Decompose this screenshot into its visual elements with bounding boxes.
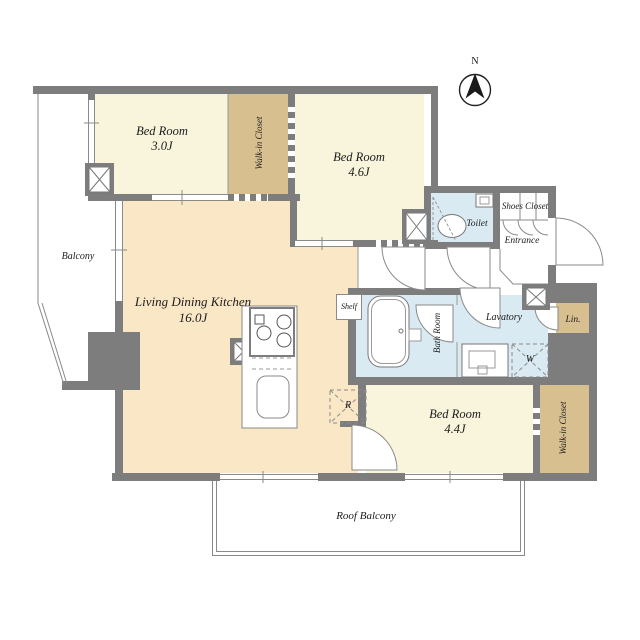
- door-arc-hallway: [447, 247, 490, 290]
- label-roof-balcony: Roof Balcony: [306, 510, 426, 522]
- label-bedroom-top-left: Bed Room3.0J: [102, 124, 222, 154]
- wall-segment: [353, 240, 370, 247]
- wall-segment: [533, 436, 540, 473]
- label-entrance: Entrance: [482, 235, 562, 247]
- wall-pillar: [88, 332, 140, 390]
- wall-segment: [548, 283, 597, 293]
- wall-segment: [533, 385, 540, 402]
- wall-segment: [431, 86, 438, 193]
- wall-segment: [424, 193, 431, 249]
- wall-segment: [115, 390, 123, 475]
- door-arc-bedroom-top-right: [382, 247, 425, 290]
- label-ldk: Living Dining Kitchen16.0J: [108, 294, 278, 326]
- compass-icon: [460, 74, 491, 106]
- window: [88, 100, 95, 164]
- label-walk-in-closet-top: Walk-in Closet: [254, 98, 264, 188]
- wall-segment: [348, 288, 460, 295]
- wall-segment: [112, 473, 220, 481]
- wall-segment: [340, 421, 366, 427]
- label-lavatory: Lavatory: [464, 312, 544, 324]
- label-walk-in-closet-bottom: Walk-in Closet: [558, 383, 568, 473]
- label-bedroom-top-right: Bed Room4.6J: [299, 150, 419, 180]
- opening-dashed: [533, 402, 540, 436]
- opening-dashed: [370, 240, 423, 247]
- window: [405, 474, 503, 480]
- wall-segment: [318, 473, 405, 481]
- entrance-step-line: [500, 249, 548, 284]
- wall-segment: [288, 94, 295, 101]
- wall-segment: [548, 293, 589, 303]
- wall-segment: [33, 86, 438, 94]
- label-toilet: Toilet: [447, 218, 507, 230]
- label-bedroom-bottom: Bed Room4.4J: [395, 407, 515, 437]
- label-refrigerator: R: [338, 400, 358, 412]
- wall-segment: [62, 381, 92, 390]
- wall-segment: [288, 178, 295, 195]
- room-floor-ldk-a: [123, 196, 295, 473]
- label-shoes-closet: Shoes Closet: [485, 201, 565, 211]
- shoes-closet-doors: [500, 193, 548, 235]
- balcony-outline: [38, 94, 67, 385]
- sliding-door: [295, 240, 353, 247]
- floor-plan: N Bed Room3.0J Bed Room4.6J Bed Room4.4J…: [0, 0, 640, 640]
- wall-segment: [88, 194, 152, 201]
- label-linen: Lin.: [553, 314, 593, 326]
- compass-north-label: N: [465, 56, 485, 68]
- opening-dashed: [228, 194, 268, 201]
- label-balcony: Balcony: [38, 251, 118, 263]
- wall-segment: [424, 186, 556, 193]
- label-bath-room: Bath Room: [432, 288, 442, 378]
- label-shelf: Shelf: [336, 302, 362, 311]
- wall-segment: [503, 473, 597, 481]
- door-arc-entrance: [556, 218, 603, 265]
- opening-dashed: [288, 101, 295, 178]
- sliding-door: [152, 194, 228, 201]
- label-washer: W: [520, 354, 540, 366]
- window: [220, 474, 318, 480]
